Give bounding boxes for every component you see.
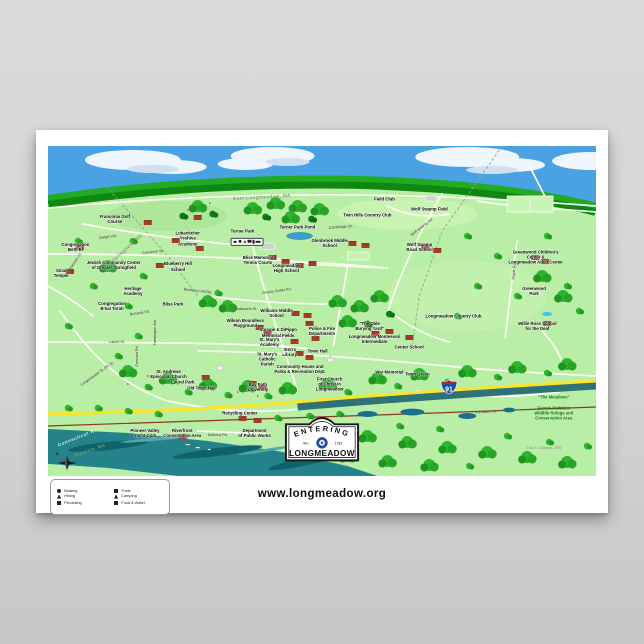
picnic-table-icon	[234, 241, 237, 243]
map-label: Center School	[395, 345, 424, 350]
legend-item: Food & Water	[114, 500, 163, 505]
map-label: St. Mary's Catholic Parish	[257, 351, 277, 366]
map-label: ©Jim B. Calogrias, 2004	[527, 446, 561, 450]
map-label: Fannie Stebbins Wildlife Refuge and Cons…	[534, 406, 573, 421]
trails-icon	[253, 240, 254, 244]
legend-label: Picnicking	[64, 501, 82, 505]
map-label: Bay Path University	[247, 382, 268, 392]
legend-label: Camping	[121, 494, 137, 498]
map-label: Bliss Park	[163, 302, 184, 307]
map-label: Community House and Parks & Recreation D…	[274, 364, 325, 374]
picnic-icon	[57, 501, 61, 505]
turner-park-facilities-box	[230, 238, 263, 246]
map-label: Town Hall	[308, 348, 328, 353]
legend-item: Boating	[57, 489, 106, 493]
map-label: Blueberry Hill Rd.	[183, 287, 212, 295]
map-label: "The Meadows"	[538, 394, 569, 399]
map-label: Old Town Hall	[187, 385, 215, 390]
playground-icon	[243, 240, 246, 243]
poster-footer: BoatingTrailsHikingCampingPicnickingFood…	[48, 478, 596, 510]
map-label: Springfield, MA	[111, 233, 144, 263]
map-label: Pioneer Valley Yacht Club	[130, 428, 159, 438]
map-label: "The Olde Burying Yard"	[355, 321, 384, 331]
map-label: Recycling Center	[222, 411, 257, 416]
legend-label: Hiking	[64, 494, 75, 498]
map-label: War Memorial	[375, 370, 403, 375]
map-label: Glenbrook Middle School	[312, 238, 348, 248]
interstate-91-shield-icon: 91	[441, 379, 458, 394]
legend-item: Trails	[114, 489, 163, 493]
map-legend: BoatingTrailsHikingCampingPicnickingFood…	[50, 479, 170, 515]
legend-label: Boating	[64, 489, 77, 493]
map-label: Cambridge Cir.	[329, 224, 354, 230]
map-label: Dickinson St.	[68, 252, 84, 272]
map-label: Laurel Park	[171, 379, 194, 384]
sign-inc-text: INC.	[303, 442, 310, 446]
map-label: Longmeadow St. (Rt. 5)	[80, 361, 114, 387]
illustrated-town-map: East Longmeadow, MAFranconia Golf Course…	[48, 146, 596, 476]
town-website-url: www.longmeadow.org	[258, 488, 386, 500]
map-label: Town Green	[405, 371, 430, 376]
legend-label: Food & Water	[121, 501, 145, 505]
map-label: Storrs Library	[282, 347, 297, 357]
hiking-icon	[57, 494, 61, 498]
map-label: St. Mary's Academy	[259, 337, 279, 347]
map-label: Twin Hills Country Club	[343, 213, 391, 218]
legend-item: Picnicking	[57, 500, 106, 505]
map-label: East Longmeadow, MA	[233, 193, 291, 201]
map-label: Williams Middle School	[260, 308, 292, 318]
map-label: Wilson Boundless Playground	[227, 317, 264, 327]
map-label: Police & Fire Departments	[309, 326, 335, 336]
legend-item: Camping	[114, 494, 163, 498]
food-water-icon	[114, 501, 118, 505]
interstate-number: 91	[445, 386, 453, 393]
map-label: Heritage Academy	[123, 286, 142, 296]
map-label: Farmington Ave.	[153, 319, 157, 346]
map-label: Burbank Rd.	[130, 309, 151, 316]
map-label: Blueberry Hill School	[164, 261, 192, 271]
screenshot-background: { "poster": { "footer": { "website": "ww…	[0, 0, 644, 644]
map-label: Grassy Gutter Rd.	[262, 287, 292, 295]
map-label: Wolf Swamp Rd.	[410, 217, 434, 237]
map-label: First Church of Christ in Longmeadow	[316, 376, 344, 391]
map-label: Pondside Rd.	[475, 409, 497, 415]
map-label: Department of Public Works	[238, 428, 270, 438]
sign-year-text: 1783	[335, 442, 343, 446]
compass-rose-icon	[56, 455, 78, 471]
map-label: Turner Park Pond	[279, 224, 315, 229]
map-label: Wadsworth St.	[233, 307, 257, 311]
map-label: St. Andrews Episcopal Church	[150, 369, 187, 379]
map-label: Stoogie & DiPippo Memorial Fields	[259, 327, 296, 337]
longmeadow-map-poster: East Longmeadow, MAFranconia Golf Course…	[36, 130, 608, 513]
map-label: Connecticut River	[57, 425, 105, 448]
map-label: Longmeadow Montessori Intermediate	[349, 334, 401, 344]
map-label: Riverfront Conservation Area	[163, 428, 201, 438]
map-label: Field Club	[374, 196, 395, 201]
map-label: Longmeadow Country Club	[425, 313, 481, 318]
map-label: Agawam, MA	[74, 443, 107, 458]
map-label: Lubavitcher Yeshiva Academy	[176, 231, 200, 246]
boating-icon	[57, 489, 61, 493]
map-label: Franconia Golf Course	[100, 214, 130, 224]
map-label: Greenwood Park	[522, 286, 546, 296]
legend-label: Trails	[121, 489, 130, 493]
map-label: Laurel St.	[109, 340, 125, 344]
camping-icon	[114, 494, 118, 498]
map-label: Dwight Rd.	[99, 234, 117, 240]
map-label: Bliss Memorial Tennis Courts	[243, 255, 273, 265]
tennis-icon	[248, 240, 251, 243]
map-label: Longmeadow High School	[273, 263, 301, 273]
trails-icon	[114, 489, 118, 493]
map-label: Congregation Beth El	[61, 242, 89, 252]
map-label: Wolf Swamp Field	[411, 206, 448, 211]
map-label: Wolf Swamp Road School	[406, 242, 432, 252]
entering-longmeadow-sign: ENTERING INC. 1783 LONGMEADOW	[283, 409, 361, 464]
legend-item: Hiking	[57, 494, 106, 498]
map-label: Maple Rd.	[511, 263, 517, 280]
map-label: Congregation B'nai Torah	[98, 301, 126, 311]
map-label: Converse St.	[142, 248, 164, 254]
map-label: Crescent Rd.	[135, 345, 139, 367]
map-label: Anthony Rd.	[208, 433, 228, 437]
map-label: Willie Ross School for the Deaf	[518, 321, 556, 331]
map-label: Sinai Temple	[54, 268, 69, 278]
parking-icon	[256, 240, 260, 243]
map-label: Greenwood Children's Center & Longmeadow…	[506, 249, 566, 264]
compass-north-label: N	[56, 451, 59, 456]
map-label: Jewish Community Center of Greater Sprin…	[87, 260, 141, 270]
sign-town-name: LONGMEADOW	[289, 449, 355, 458]
restrooms-icon	[238, 240, 241, 243]
map-label: Turner Park	[231, 229, 255, 234]
